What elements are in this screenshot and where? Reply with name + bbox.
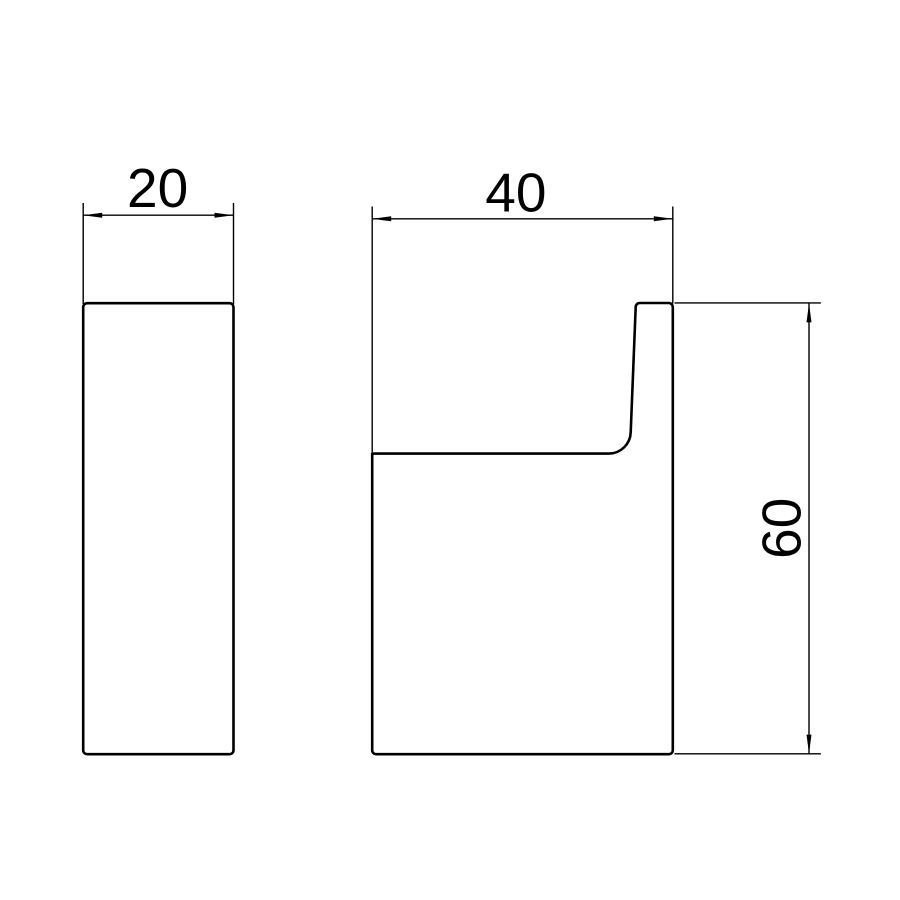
- svg-text:40: 40: [485, 161, 546, 223]
- svg-text:60: 60: [751, 498, 813, 559]
- svg-text:20: 20: [127, 157, 188, 219]
